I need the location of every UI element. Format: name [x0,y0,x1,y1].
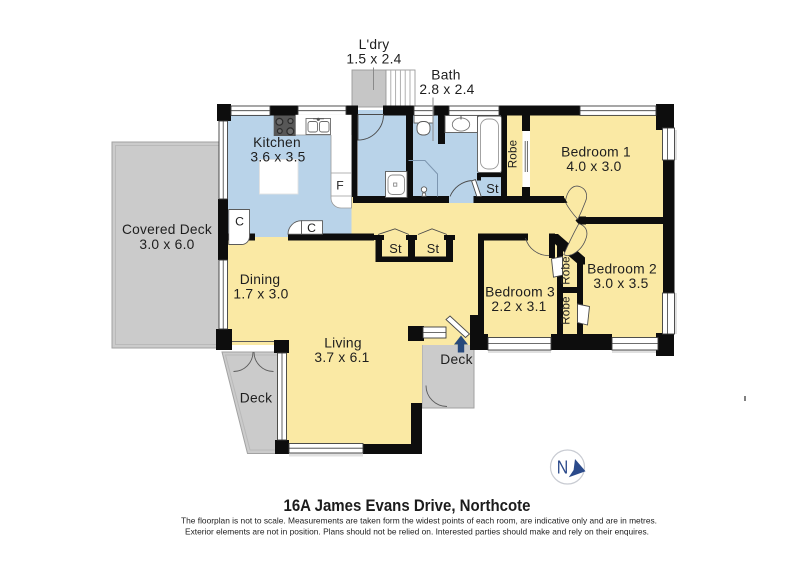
svg-text:Bedroom 2: Bedroom 2 [587,262,657,277]
svg-text:1.7 x 3.0: 1.7 x 3.0 [233,287,288,302]
svg-text:Bedroom 1: Bedroom 1 [561,145,631,160]
svg-text:3.6 x 3.5: 3.6 x 3.5 [250,150,305,165]
svg-text:Kitchen: Kitchen [253,135,301,150]
svg-text:16A James Evans Drive, Northco: 16A James Evans Drive, Northcote [284,497,531,515]
svg-text:St: St [486,181,499,196]
svg-text:The floorplan is not to scale.: The floorplan is not to scale. Measureme… [181,516,657,526]
svg-text:C: C [307,221,316,235]
svg-text:St: St [389,241,402,256]
svg-text:St: St [427,241,440,256]
svg-text:Deck: Deck [240,391,272,406]
svg-text:3.0 x 6.0: 3.0 x 6.0 [139,237,194,252]
svg-text:Robe: Robe [560,256,573,285]
svg-text:Bedroom 3: Bedroom 3 [485,285,555,300]
svg-text:Robe: Robe [507,140,520,169]
svg-text:Dining: Dining [240,272,281,287]
svg-text:Living: Living [324,336,362,351]
svg-text:2.8 x 2.4: 2.8 x 2.4 [419,82,474,97]
svg-text:N: N [557,457,569,478]
svg-text:F: F [336,179,343,193]
svg-text:Exterior elements are not in p: Exterior elements are not in position. P… [185,527,649,537]
svg-text:1.5 x 2.4: 1.5 x 2.4 [346,52,401,67]
svg-text:C: C [235,215,244,229]
svg-text:3.7 x 6.1: 3.7 x 6.1 [314,350,369,365]
svg-text:Robe: Robe [560,296,573,325]
svg-text:Deck: Deck [440,352,472,367]
svg-text:L'dry: L'dry [359,37,390,52]
svg-text:Covered Deck: Covered Deck [122,222,212,237]
svg-text:3.0 x 3.5: 3.0 x 3.5 [593,276,648,291]
svg-text:Bath: Bath [431,68,460,83]
svg-text:4.0 x 3.0: 4.0 x 3.0 [566,159,621,174]
svg-text:2.2 x 3.1: 2.2 x 3.1 [491,299,546,314]
